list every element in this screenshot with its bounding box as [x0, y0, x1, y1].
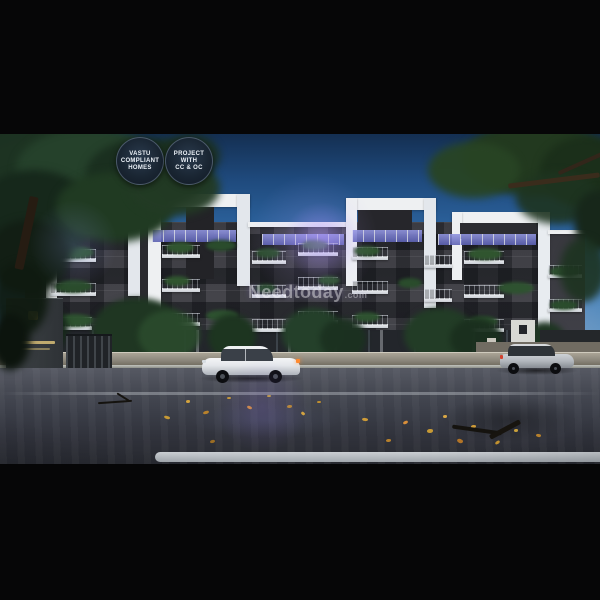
- badge-vastu-compliant: VASTU COMPLIANT HOMES: [116, 137, 164, 185]
- letterbox-background: VASTU COMPLIANT HOMES PROJECT WITH CC & …: [0, 0, 600, 600]
- watermark: Needtoday .com: [248, 282, 367, 303]
- badge-project-cc-oc: PROJECT WITH CC & OC: [165, 137, 213, 185]
- watermark-tld: .com: [345, 290, 368, 300]
- building-render-photo: VASTU COMPLIANT HOMES PROJECT WITH CC & …: [0, 134, 600, 464]
- watermark-name: Needtoday: [248, 282, 344, 303]
